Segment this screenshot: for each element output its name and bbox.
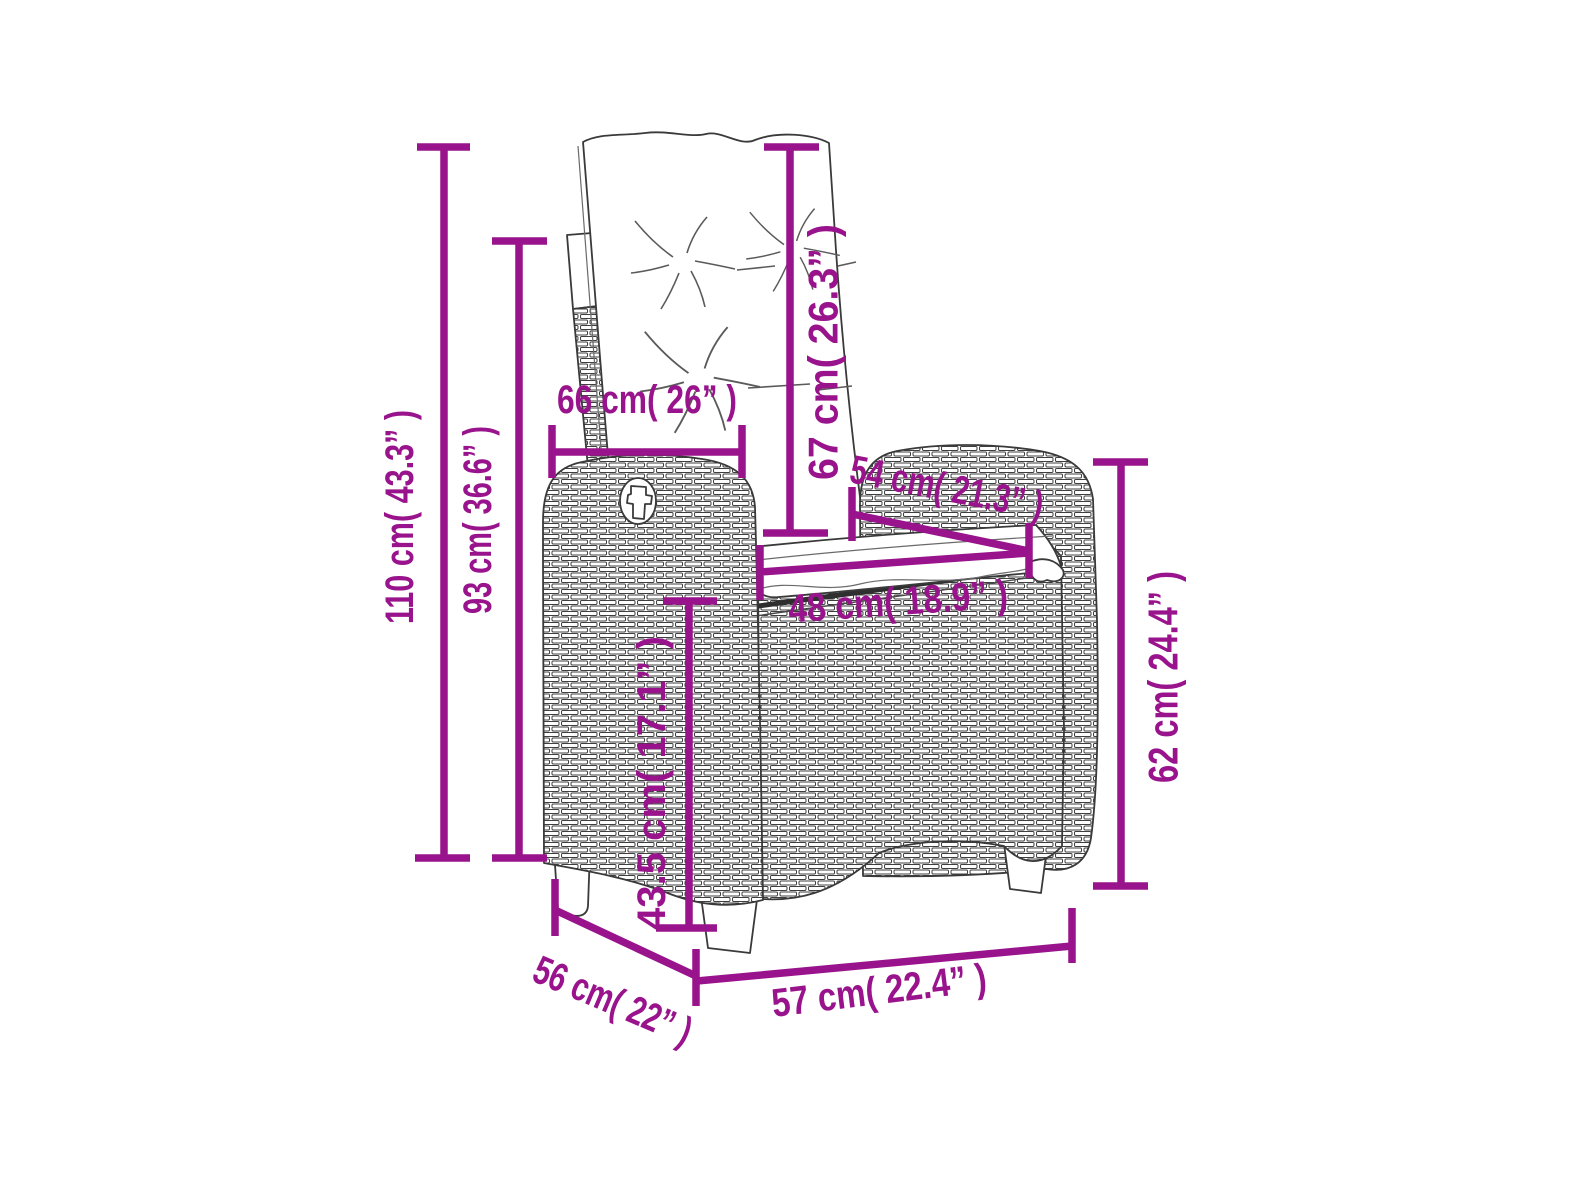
- dimension-label: 110 cm( 43.3” ): [378, 410, 422, 624]
- dimension-label: 93 cm( 36.6” ): [456, 426, 500, 614]
- dimension-backrest-top-height: 93 cm( 36.6” ): [456, 241, 547, 858]
- dimension-label: 67 cm( 26.3” ): [800, 224, 847, 480]
- dimension-label: 43.5 cm( 17.1” ): [630, 636, 674, 930]
- diagram-canvas: 110 cm( 43.3” ) 93 cm( 36.6” ) 66 cm( 26…: [0, 0, 1570, 1177]
- dimension-line: [492, 241, 547, 858]
- dimension-label: 62 cm( 24.4” ): [1140, 571, 1187, 783]
- dimension-armrest-height: 62 cm( 24.4” ): [1093, 462, 1187, 886]
- recline-handle: [620, 478, 656, 524]
- dimension-label: 66 cm( 26” ): [557, 378, 737, 422]
- dimension-diagram: 110 cm( 43.3” ) 93 cm( 36.6” ) 66 cm( 26…: [0, 0, 1570, 1177]
